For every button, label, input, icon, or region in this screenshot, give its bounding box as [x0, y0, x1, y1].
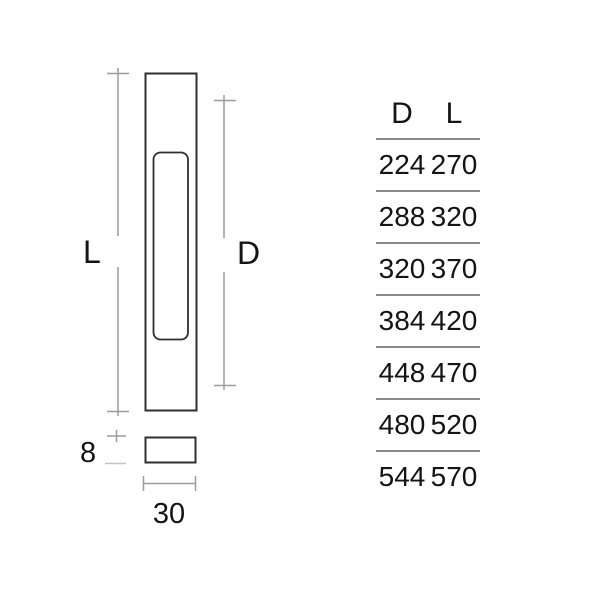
l-value: 520 — [428, 400, 480, 450]
table-row: 480 520 — [376, 400, 480, 452]
handle-side-outline — [146, 438, 196, 463]
d-value: 544 — [376, 452, 428, 502]
technical-drawing — [0, 0, 600, 600]
l-value: 270 — [428, 140, 480, 190]
table-row: 224 270 — [376, 140, 480, 192]
product-dimension-sheet: L D 8 30 D L 224 270 288 320 320 370 384… — [0, 0, 600, 600]
label-thickness-8: 8 — [80, 439, 96, 468]
d-value: 320 — [376, 244, 428, 294]
d-value: 480 — [376, 400, 428, 450]
table-row: 320 370 — [376, 244, 480, 296]
table-row: 384 420 — [376, 296, 480, 348]
table-row: 288 320 — [376, 192, 480, 244]
d-value: 288 — [376, 192, 428, 242]
l-value: 370 — [428, 244, 480, 294]
size-table: D L 224 270 288 320 320 370 384 420 448 … — [376, 90, 480, 502]
l-value: 470 — [428, 348, 480, 398]
dimension-line-D — [214, 95, 236, 390]
size-table-header: D L — [376, 90, 480, 140]
dimension-line-30 — [143, 476, 196, 491]
label-width-30: 30 — [139, 500, 199, 529]
l-value: 570 — [428, 452, 480, 502]
label-length-L: L — [83, 236, 101, 268]
dimension-line-8 — [105, 430, 126, 464]
l-value: 420 — [428, 296, 480, 346]
l-value: 320 — [428, 192, 480, 242]
page: { "colors": { "background": "#ffffff", "… — [0, 0, 600, 600]
d-value: 224 — [376, 140, 428, 190]
dimension-line-L — [107, 68, 129, 416]
handle-recess-outline — [154, 153, 189, 340]
d-value: 384 — [376, 296, 428, 346]
table-row: 544 570 — [376, 452, 480, 502]
column-header-l: L — [428, 90, 480, 138]
table-row: 448 470 — [376, 348, 480, 400]
column-header-d: D — [376, 90, 428, 138]
label-recess-D: D — [237, 237, 260, 269]
d-value: 448 — [376, 348, 428, 398]
